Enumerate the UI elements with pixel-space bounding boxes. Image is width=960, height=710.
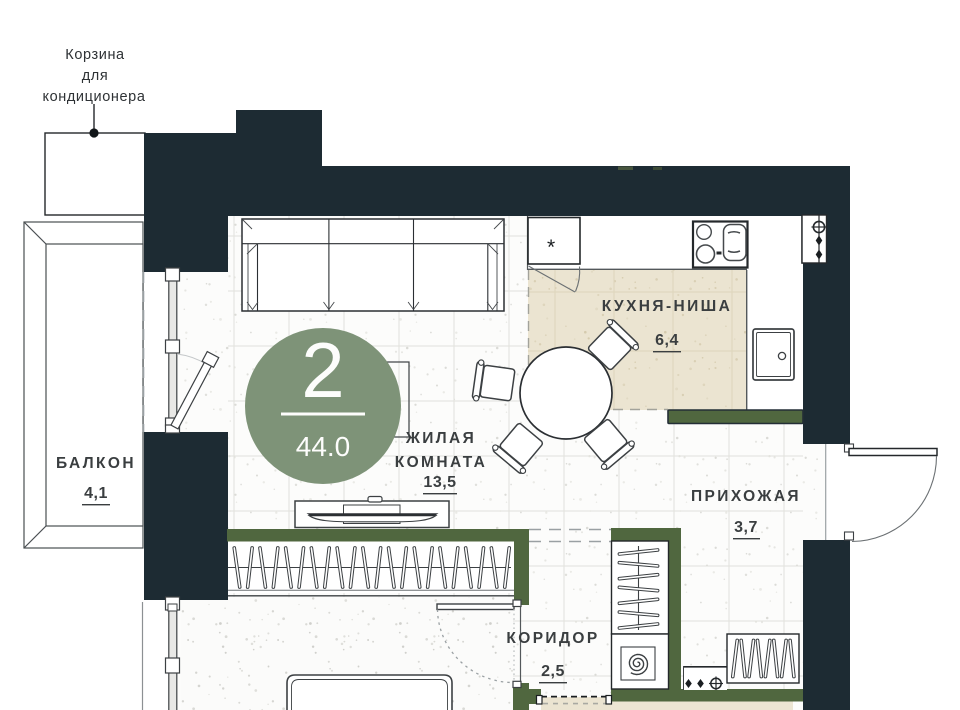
svg-text:КОРИДОР: КОРИДОР xyxy=(506,630,599,647)
svg-text:3,7: 3,7 xyxy=(734,519,758,536)
svg-text:БАЛКОН: БАЛКОН xyxy=(56,455,136,472)
svg-text:44.0: 44.0 xyxy=(296,431,351,462)
svg-text:ПРИХОЖАЯ: ПРИХОЖАЯ xyxy=(691,488,801,505)
svg-text:2: 2 xyxy=(301,326,344,414)
svg-text:6,4: 6,4 xyxy=(655,332,679,349)
svg-text:КУХНЯ-НИША: КУХНЯ-НИША xyxy=(602,298,732,315)
svg-text:кондиционера: кондиционера xyxy=(42,89,145,105)
svg-text:2,5: 2,5 xyxy=(541,663,565,680)
svg-text:*: * xyxy=(547,236,555,259)
svg-text:КОМНАТА: КОМНАТА xyxy=(395,454,488,471)
svg-text:ЖИЛАЯ: ЖИЛАЯ xyxy=(405,430,476,447)
svg-text:13,5: 13,5 xyxy=(423,474,456,491)
svg-text:Корзина: Корзина xyxy=(65,47,125,63)
svg-text:4,1: 4,1 xyxy=(84,485,108,502)
svg-text:для: для xyxy=(82,68,109,84)
